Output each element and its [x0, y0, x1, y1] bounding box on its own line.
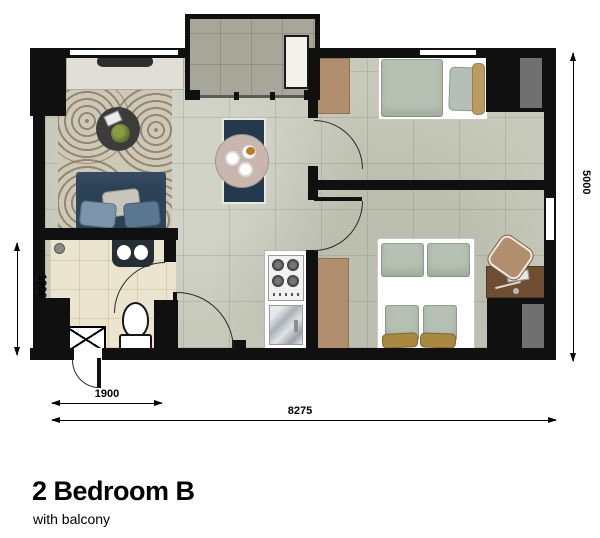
kitchen-sink-icon [269, 305, 303, 345]
dimension-line-left [17, 243, 18, 355]
balcony-wall-top [185, 14, 320, 19]
bed2-throw-tan [382, 332, 419, 349]
window-living [70, 50, 178, 55]
wall-stub-corridor [232, 340, 246, 348]
burner-icon [287, 275, 299, 287]
bedroom1-wardrobe [316, 58, 350, 114]
wall-bedrooms-west-upper [308, 48, 318, 118]
sofa [76, 172, 166, 233]
plan-title: 2 Bedroom B [32, 476, 195, 507]
closet-panel [520, 56, 542, 108]
balcony-bench [284, 35, 309, 89]
burner-icon [287, 259, 299, 271]
bathroom-vanity [112, 240, 154, 267]
closet-panel [522, 304, 544, 348]
plan-subtitle: with balcony [33, 511, 110, 527]
dimension-label-1900: 1900 [72, 388, 142, 400]
dining-table [215, 134, 269, 188]
dimension-line-1900 [52, 403, 162, 404]
plate-icon [238, 162, 253, 177]
kitchen-counter [264, 250, 308, 350]
sofa-pillow-blue [79, 200, 117, 229]
wall-bathroom-east-upper [164, 240, 176, 262]
bed2-headboard-cushion [381, 243, 424, 277]
bedroom2-wardrobe [317, 258, 349, 350]
sliding-door [190, 95, 315, 98]
sofa-pillow-blue [123, 200, 161, 229]
sliding-door-stop [234, 92, 239, 100]
dimension-label-8275: 8275 [258, 405, 342, 417]
washbasin-icon [134, 245, 148, 260]
bed1-pillow-tan [472, 63, 485, 115]
floor-plan-page: 1900 5000 1900 8275 2 Bedroom B with bal… [0, 0, 600, 538]
plant-icon [111, 124, 130, 143]
bed2-throw-tan [420, 332, 457, 348]
burner-icon [272, 259, 284, 271]
stove-icon [268, 255, 304, 301]
wall-bottom [30, 348, 556, 360]
dimension-line-8275 [52, 420, 556, 421]
bed2-headboard-cushion [427, 243, 470, 277]
burner-icon [272, 275, 284, 287]
entrance-door-arc [72, 360, 99, 388]
bedroom1-closet [486, 52, 544, 112]
faucet-icon [294, 320, 298, 332]
mouse-icon [513, 288, 519, 294]
bed1-blanket [381, 59, 443, 117]
window-bedroom1 [420, 50, 476, 55]
plate-icon [225, 151, 240, 166]
wall-bedrooms-west-lower [306, 250, 318, 360]
dimension-label-left: 1900 [36, 274, 48, 298]
shower-head-icon [54, 243, 65, 254]
column-bottom-left [44, 298, 70, 348]
bedroom2-bed [377, 238, 475, 350]
coffee-table [96, 107, 140, 151]
sliding-door-stop [270, 92, 275, 100]
window-bedroom2 [546, 198, 554, 240]
bedroom1-bed [378, 56, 488, 120]
wall-bedroom-divider [312, 180, 556, 190]
dimension-label-right: 5000 [580, 170, 592, 194]
dimension-line-right [573, 53, 574, 361]
food-icon [246, 147, 255, 155]
bedroom2-closet [487, 294, 544, 348]
wall-bathroom-north [33, 228, 178, 240]
sliding-door-jamb [185, 90, 200, 100]
washbasin-icon [117, 245, 131, 260]
column-top-left [30, 52, 66, 116]
stove-knobs [273, 293, 299, 296]
